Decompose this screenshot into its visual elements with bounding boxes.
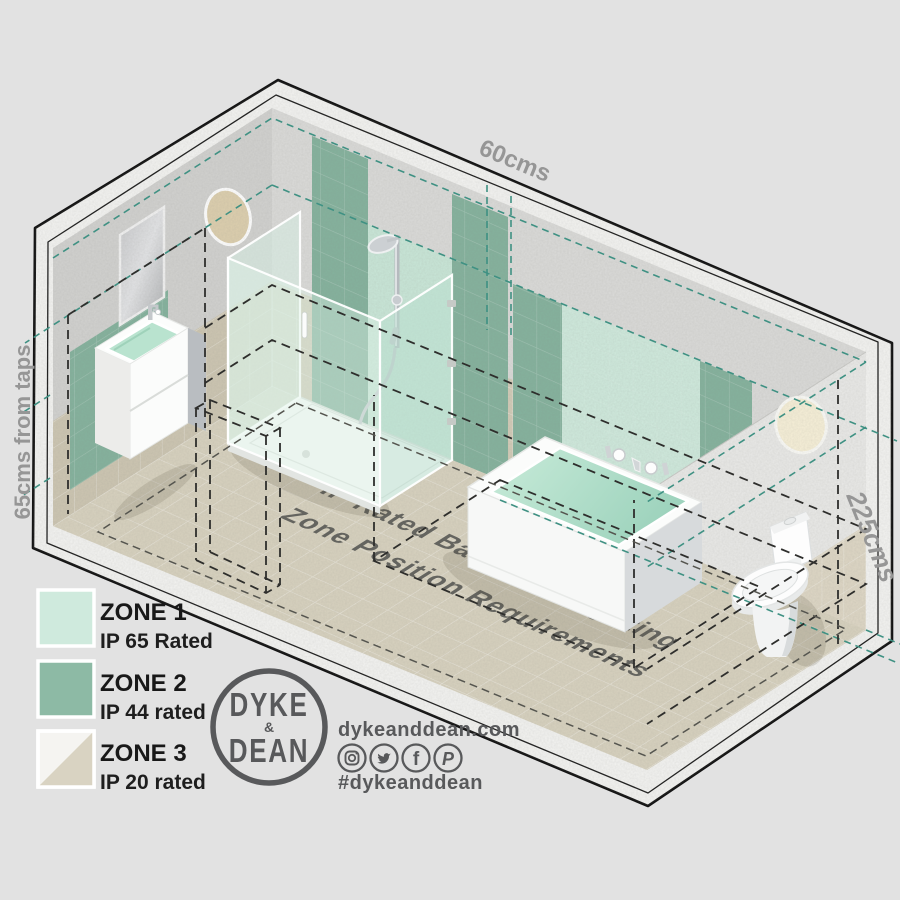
- zone2-swatch: [38, 661, 94, 717]
- zone1-label: ZONE 1: [100, 599, 187, 626]
- vanity-right-side: [188, 328, 206, 431]
- concrete-texture: [33, 80, 892, 806]
- svg-text:P: P: [442, 749, 455, 769]
- glass-door-handle: [302, 312, 307, 338]
- pinterest-icon: P: [435, 745, 462, 772]
- legend-item-zone3: ZONE 3 IP 20 rated: [38, 731, 206, 794]
- twitter-icon: [371, 745, 398, 772]
- dimension-left: 65cms from taps: [10, 345, 35, 520]
- zone1-swatch: [38, 590, 94, 646]
- zone1-rating: IP 65 Rated: [100, 630, 213, 653]
- vanity-side: [95, 348, 130, 459]
- social-icons: f P: [339, 745, 462, 772]
- zone3-rating: IP 20 rated: [100, 771, 206, 794]
- infographic-poster: { "scene": { "dimensions": { "top": "60c…: [0, 0, 900, 900]
- svg-text:f: f: [413, 749, 420, 770]
- legend-item-zone1: ZONE 1 IP 65 Rated: [38, 590, 213, 653]
- instagram-icon: [339, 745, 366, 772]
- shower-valve: [392, 295, 402, 305]
- hashtag-text: #dykeanddean: [338, 772, 483, 794]
- zone2-label: ZONE 2: [100, 670, 187, 697]
- zone2-rating: IP 44 rated: [100, 701, 206, 724]
- bathroom-zone-diagram: IP Rated Bathroom Lighting Zone Position…: [0, 0, 900, 900]
- legend: ZONE 1 IP 65 Rated ZONE 2 IP 44 rated ZO…: [38, 590, 213, 794]
- facebook-icon: f: [403, 745, 430, 772]
- logo-word-bottom: DEAN: [229, 733, 309, 770]
- zone3-label: ZONE 3: [100, 740, 187, 767]
- website-text: dykeanddean.com: [338, 719, 520, 741]
- legend-item-zone2: ZONE 2 IP 44 rated: [38, 661, 206, 724]
